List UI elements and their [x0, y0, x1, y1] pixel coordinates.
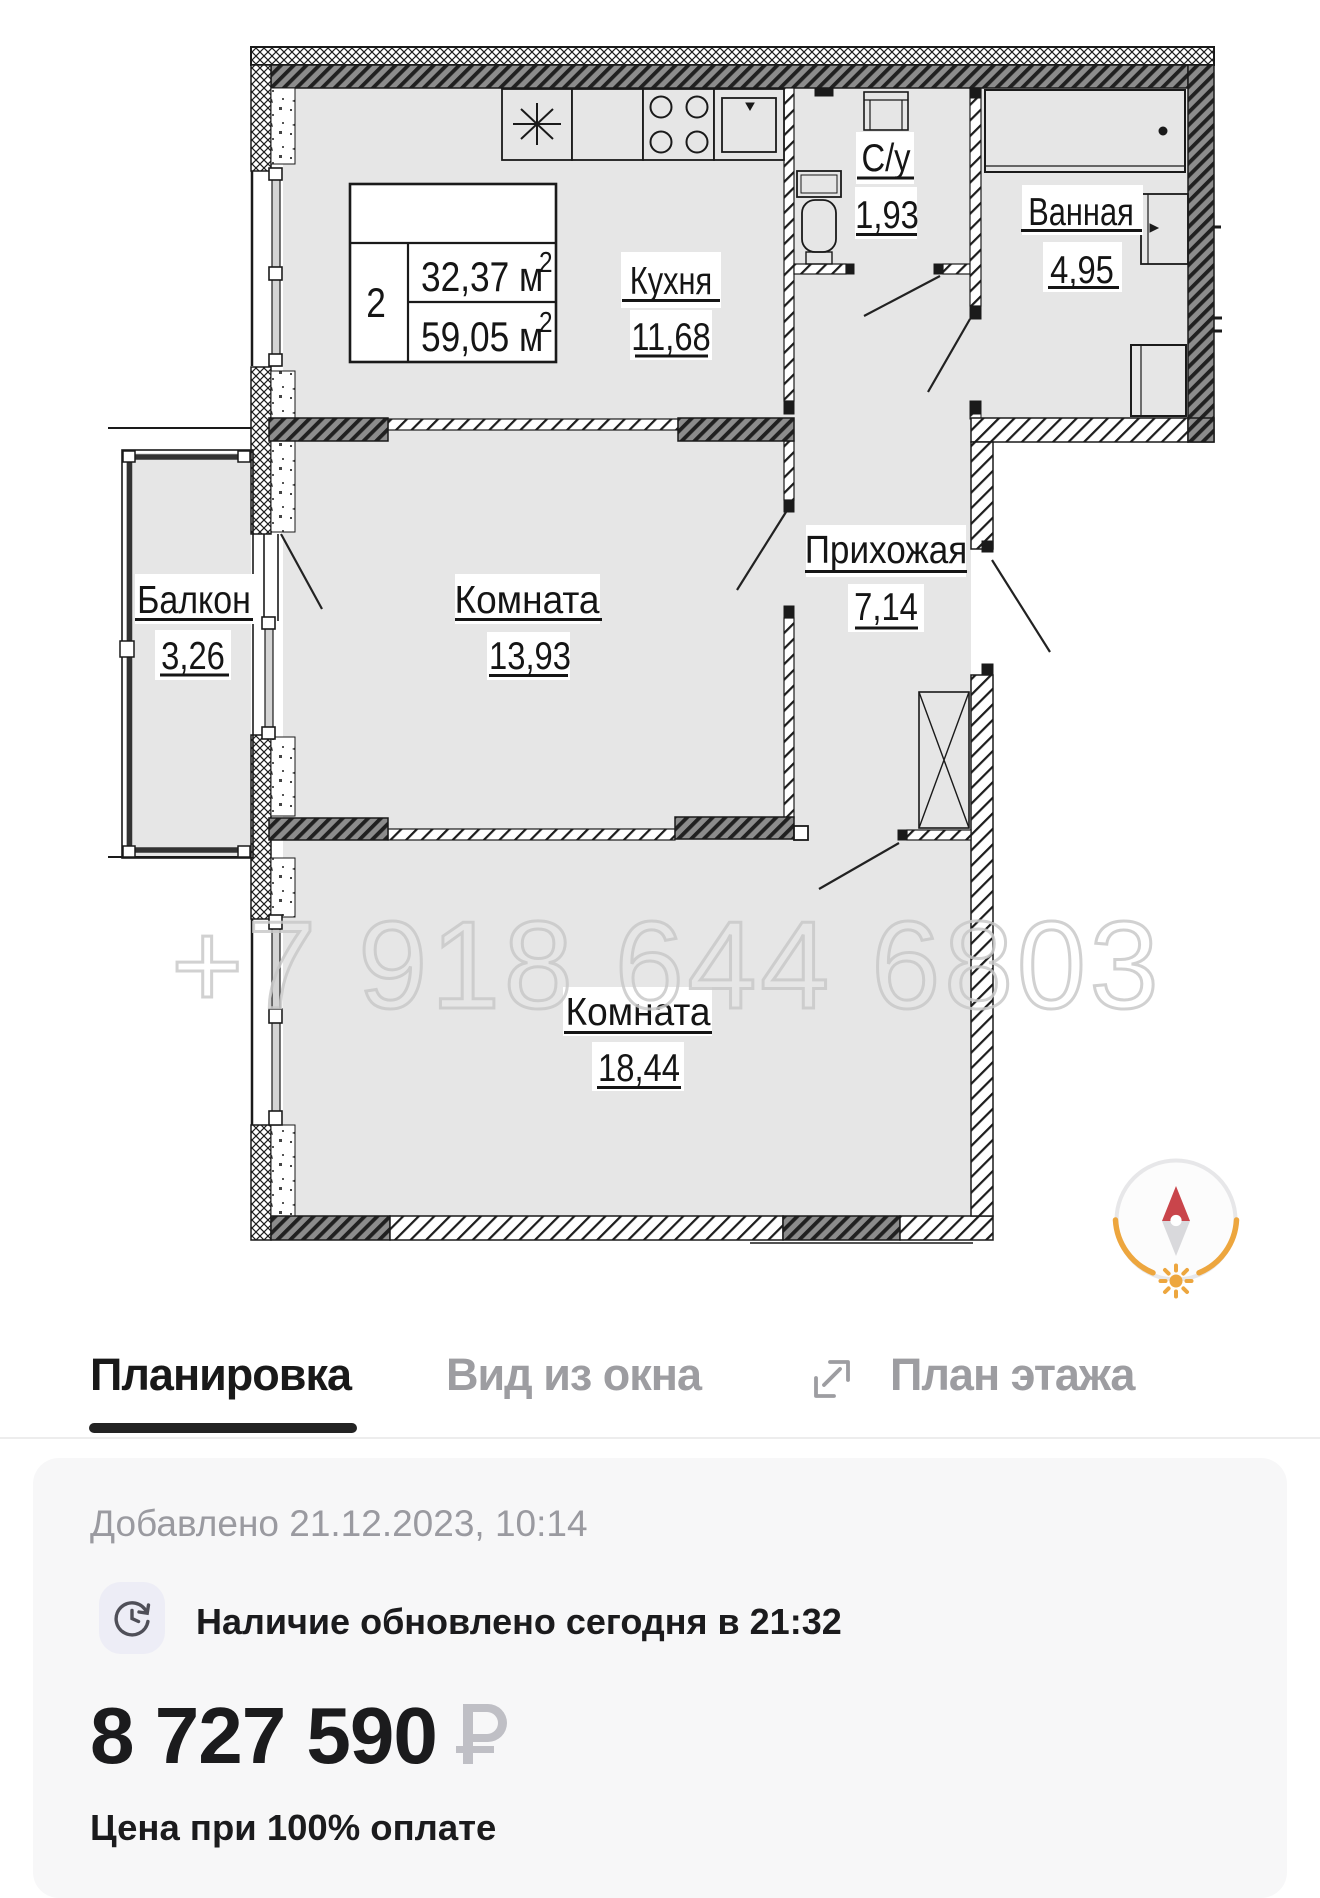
svg-text:2: 2	[539, 246, 553, 278]
svg-text:Кухня: Кухня	[630, 260, 712, 303]
svg-text:13,93: 13,93	[489, 633, 571, 677]
svg-text:Прихожая: Прихожая	[805, 527, 968, 571]
svg-text:7,14: 7,14	[854, 584, 918, 628]
svg-text:59,05 м: 59,05 м	[421, 314, 543, 361]
svg-text:4,95: 4,95	[1050, 247, 1114, 291]
svg-text:11,68: 11,68	[631, 314, 711, 358]
svg-text:Балкон: Балкон	[137, 578, 251, 622]
svg-text:32,37 м: 32,37 м	[421, 254, 543, 301]
svg-text:Ванная: Ванная	[1028, 191, 1133, 234]
svg-text:1,93: 1,93	[855, 192, 919, 236]
svg-text:С/у: С/у	[861, 135, 910, 179]
svg-text:+7 918 644 6803: +7 918 644 6803	[171, 897, 1162, 1035]
svg-text:18,44: 18,44	[598, 1045, 680, 1089]
svg-text:2: 2	[366, 280, 386, 327]
svg-text:2: 2	[539, 306, 553, 338]
svg-text:Комната: Комната	[455, 579, 601, 622]
svg-text:3,26: 3,26	[161, 633, 225, 677]
